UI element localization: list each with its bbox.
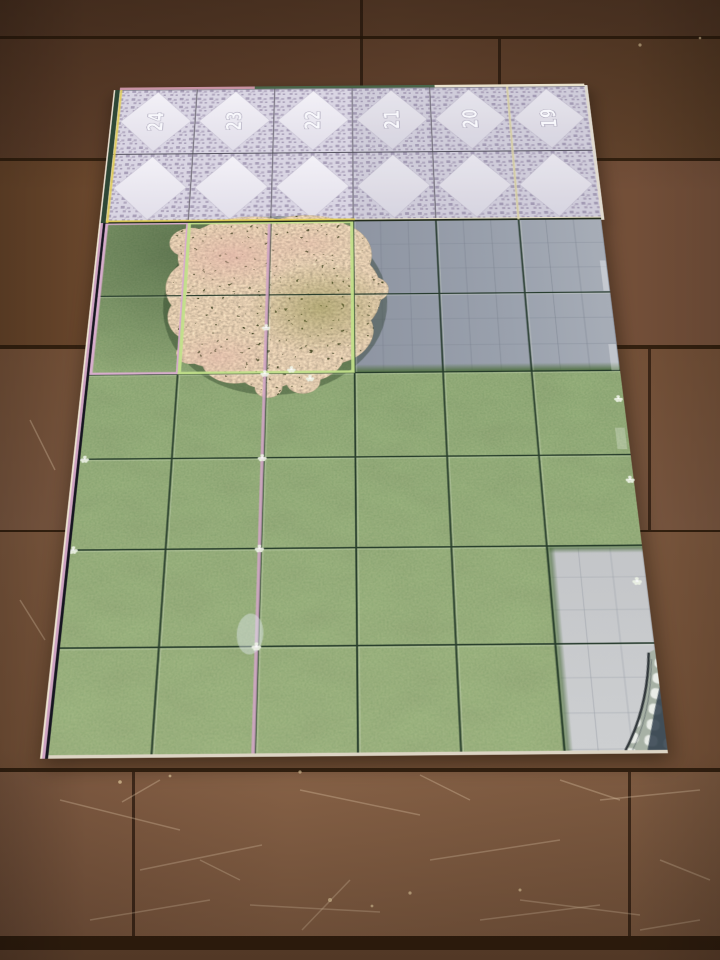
stone-pavement-upper xyxy=(353,219,620,373)
grid-number: 19 xyxy=(537,108,563,128)
battle-map-art: 24 23 22 21 20 19 xyxy=(40,84,676,759)
tile-floor-band: 24 23 22 21 20 19 xyxy=(106,86,602,223)
battle-map: 24 23 22 21 20 19 xyxy=(40,84,676,759)
grid-number: 22 xyxy=(302,110,326,130)
band-shading xyxy=(352,86,601,221)
grid-number: 24 xyxy=(144,111,169,131)
grid-number: 20 xyxy=(459,109,484,129)
grid-number: 23 xyxy=(223,111,248,131)
grid-number: 21 xyxy=(380,109,404,129)
garden-area xyxy=(46,205,668,755)
stone-pavement-corner xyxy=(547,545,668,751)
photo-scene: 24 23 22 21 20 19 xyxy=(0,0,720,960)
